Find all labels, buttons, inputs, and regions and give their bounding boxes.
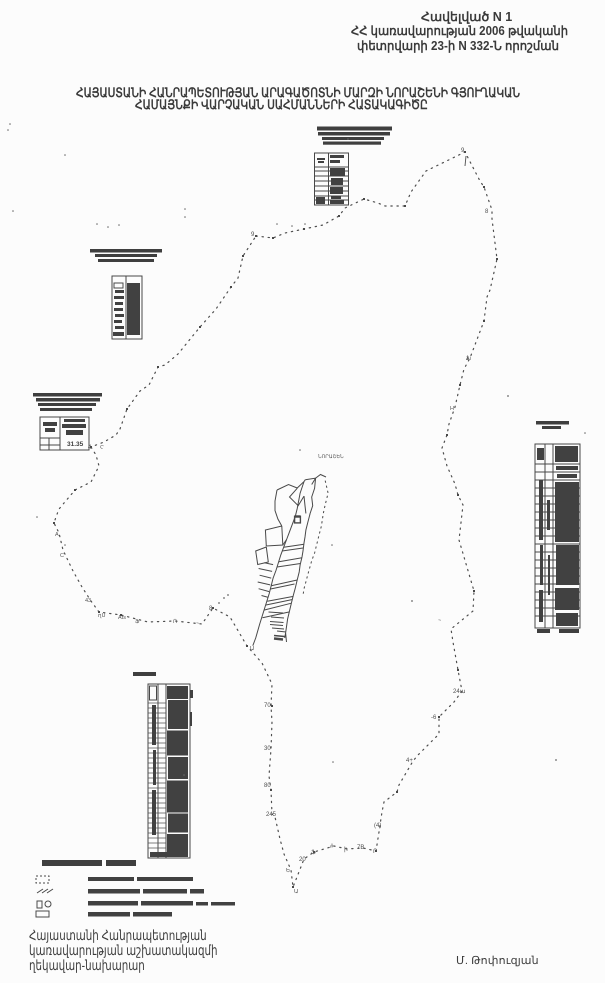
svg-text:Ֆ: Ֆ [311,849,316,856]
svg-text:7B: 7B [357,845,364,851]
svg-text:43: 43 [85,598,91,604]
svg-text:Ա: Ա [250,645,255,652]
svg-text:245: 245 [266,812,277,818]
svg-text:Ats: Ats [118,615,126,621]
svg-text:Ϛ: Ϛ [100,445,104,451]
svg-text:30: 30 [264,746,271,752]
svg-text:ՆՈՐԱՇԵՆ: ՆՈՐԱՇԵՆ [318,454,344,460]
svg-text:~: ~ [438,618,441,624]
svg-text:Ֆ: Ֆ [135,618,140,625]
svg-text:8: 8 [485,209,489,215]
svg-text:24ա: 24ա [453,689,466,695]
svg-text:Ր: Ր [373,848,377,855]
svg-text:A: A [55,532,59,538]
svg-text:-6: -6 [431,715,437,721]
svg-text:H: H [450,406,454,412]
svg-text:(4): (4) [374,823,381,829]
svg-text:Ո: Ո [173,618,177,625]
svg-text:#: # [330,844,334,850]
svg-text:70: 70 [264,703,271,709]
svg-text:9: 9 [251,232,255,238]
svg-text:C: C [60,553,64,559]
svg-text:ղՍ: ղՍ [98,613,106,619]
svg-text:ի: ի [344,846,348,853]
svg-text:80: 80 [264,783,271,789]
svg-text:4+: 4+ [406,758,413,764]
svg-text:Ա: Ա [294,888,299,895]
svg-text:20: 20 [299,857,306,863]
svg-text:~: ~ [196,621,199,627]
svg-text:Ե: Ե [286,867,290,874]
svg-text:31.35: 31.35 [67,441,84,448]
svg-text:Ai: Ai [466,356,471,362]
